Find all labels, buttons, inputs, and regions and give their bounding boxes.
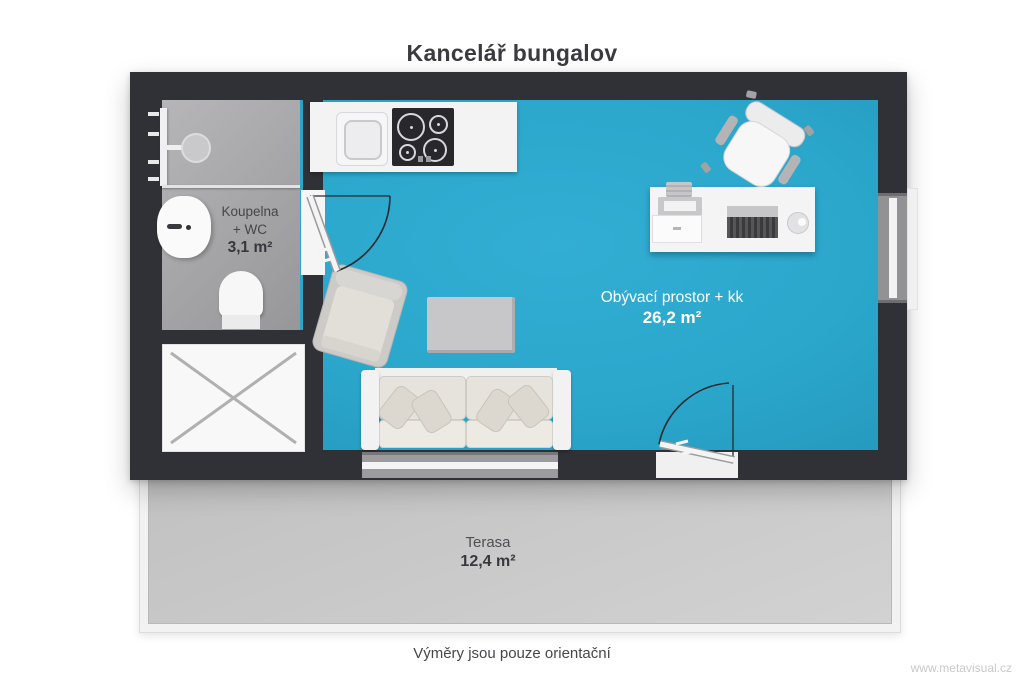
terrace-label: Terasa 12,4 m²	[460, 533, 515, 571]
window-behind-sofa-glass	[362, 462, 558, 469]
bathroom-name-line2: + WC	[190, 221, 310, 239]
cabinet-handle-icon	[673, 227, 681, 230]
terrace: Terasa 12,4 m²	[139, 468, 901, 633]
footnote: Výměry jsou pouze orientační	[0, 645, 1024, 662]
toilet	[219, 271, 263, 329]
entrance-door-threshold	[656, 452, 738, 478]
desk-cabinet	[652, 215, 702, 243]
watermark: www.metavisual.cz	[911, 661, 1012, 675]
page-title: Kancelář bungalov	[0, 40, 1024, 67]
sofa	[361, 368, 571, 452]
window-right-glass	[889, 198, 897, 298]
shower-hinge-icon	[148, 112, 159, 116]
building: Koupelna + WC 3,1 m² Obývací prostor + k…	[130, 72, 907, 480]
shower-hinge-icon	[148, 177, 159, 181]
terrace-floor	[148, 477, 892, 624]
bathroom-name-line1: Koupelna	[190, 203, 310, 221]
terrace-name: Terasa	[460, 533, 515, 552]
burner-icon	[399, 144, 416, 161]
kitchen-sink	[336, 112, 388, 166]
burner-icon	[397, 113, 425, 141]
kitchen-sink-basin	[344, 120, 382, 160]
printer-paper	[664, 201, 696, 211]
laptop	[727, 206, 778, 238]
laptop-keyboard	[727, 217, 778, 238]
faucet-icon	[167, 224, 182, 229]
terrace-area: 12,4 m²	[460, 552, 515, 571]
sofa-armrest	[553, 370, 571, 450]
laptop-palmrest	[727, 206, 778, 217]
closet-x-icon	[163, 345, 304, 451]
bathroom-area: 3,1 m²	[190, 239, 310, 257]
cooktop	[392, 108, 454, 166]
toilet-bowl	[219, 271, 263, 317]
living-room-area: 26,2 m²	[601, 308, 744, 328]
mouse-dot-icon	[798, 218, 806, 226]
toilet-tank	[222, 315, 260, 329]
burner-icon	[429, 115, 448, 134]
chair-caster-icon	[746, 90, 757, 99]
mouse-icon	[787, 212, 809, 234]
printer	[658, 197, 702, 217]
kitchen-counter	[310, 102, 517, 172]
sofa-armrest	[361, 370, 379, 450]
cooktop-control-icon	[426, 156, 431, 162]
bathroom-label: Koupelna + WC 3,1 m²	[190, 203, 310, 257]
shower-head-icon	[181, 133, 211, 163]
window-sill	[907, 188, 918, 310]
wall-bathroom-bottom	[162, 330, 323, 344]
closet	[162, 344, 305, 452]
window-right	[878, 193, 907, 303]
wall-bathroom-right-lower	[303, 275, 323, 450]
shower-hinge-icon	[148, 160, 159, 164]
living-room-label: Obývací prostor + kk 26,2 m²	[601, 288, 744, 328]
window-behind-sofa	[362, 452, 558, 478]
floorplan-image: Kancelář bungalov Terasa 12,4 m²	[0, 0, 1024, 682]
living-room-name: Obývací prostor + kk	[601, 288, 744, 308]
shower-divider	[162, 185, 300, 188]
coffee-table	[427, 297, 515, 353]
cooktop-control-icon	[418, 156, 423, 162]
sofa-cushion	[466, 420, 553, 448]
desk-phone-icon	[666, 182, 692, 197]
shower-hinge-icon	[148, 132, 159, 136]
